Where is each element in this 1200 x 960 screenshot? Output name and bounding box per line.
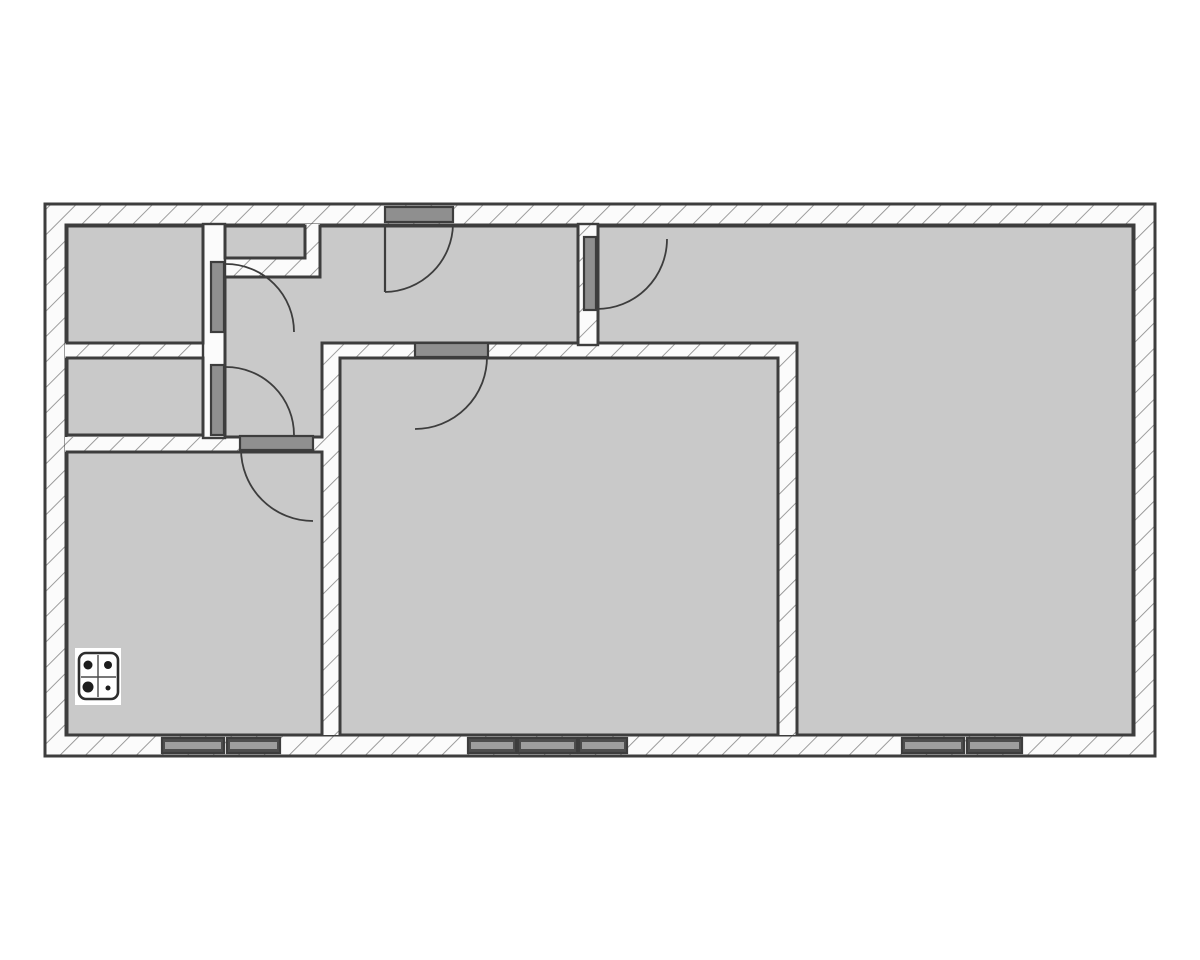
wall-left-rooms-divider (65, 343, 203, 358)
wall-living-top (322, 343, 797, 358)
stove-burner-1 (84, 661, 93, 670)
door-top-left-room-bar (211, 262, 224, 332)
wall-closet-bottom (225, 258, 320, 277)
wall-living-right (778, 343, 797, 735)
window-right-1-pane (905, 742, 961, 749)
stove-burner-2 (104, 661, 112, 669)
window-right-2-pane (970, 742, 1019, 749)
door-entrance-bar (385, 207, 453, 222)
wall-living-left (322, 343, 340, 735)
room-top-left (67, 226, 203, 343)
room-mid-left (67, 358, 203, 435)
window-living-1-pane (471, 742, 513, 749)
room-closet (225, 226, 305, 258)
stove-burner-4 (106, 686, 111, 691)
stove-burner-3 (83, 682, 94, 693)
room-living (340, 358, 778, 735)
floorplan-image (0, 0, 1200, 960)
door-kitchen-bar (240, 436, 313, 450)
window-kitchen-1-pane (165, 742, 221, 749)
stove-icon (75, 648, 121, 705)
window-living-2-pane (521, 742, 574, 749)
door-living-bar (415, 343, 488, 357)
floorplan-svg (0, 0, 1200, 960)
door-right-room-bar (584, 237, 596, 310)
door-mid-left-room-bar (211, 365, 224, 435)
window-kitchen-2-pane (230, 742, 277, 749)
window-living-3-pane (582, 742, 624, 749)
